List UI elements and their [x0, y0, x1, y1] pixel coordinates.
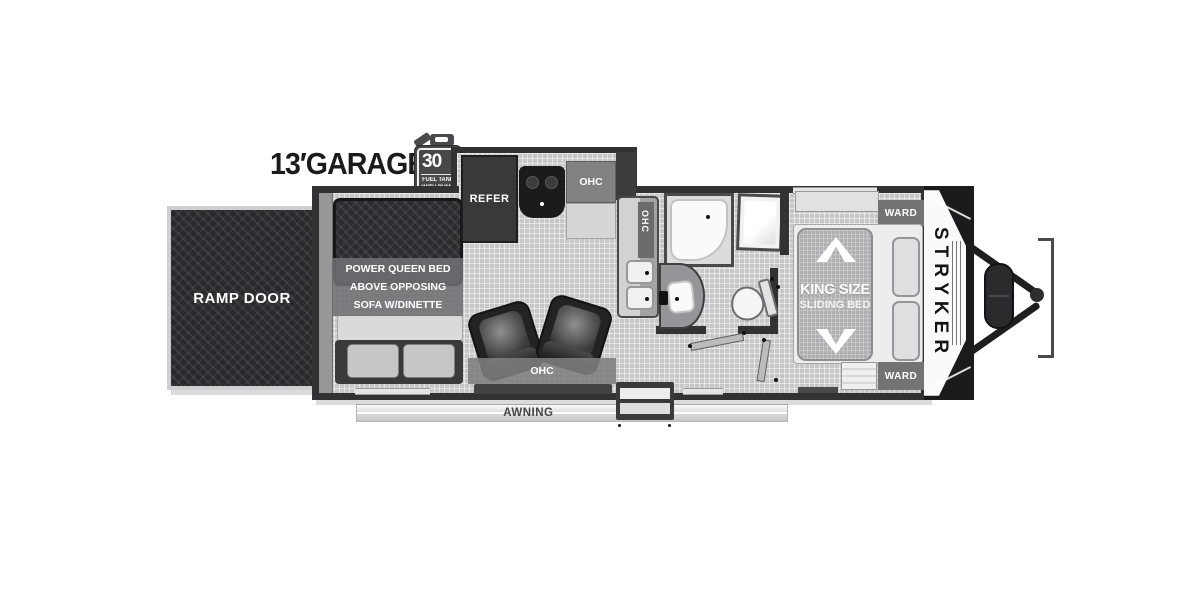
- bed-chevron-down-icon: [816, 329, 856, 354]
- wardrobe-top-label: WARD: [885, 208, 918, 219]
- floorplan-canvas: 13′GARAGE 30 GAL FUEL TANK WITH PUMP RAM…: [0, 0, 1200, 600]
- garage-sofa: [335, 340, 463, 384]
- stove-knob: [540, 202, 544, 206]
- drain-dot: [675, 297, 679, 301]
- stove-burner: [545, 176, 558, 189]
- bathroom-vanity: [659, 263, 705, 329]
- jack-bracket-arm: [1038, 238, 1054, 241]
- step-foot-dot: [618, 424, 621, 427]
- brand-label: STRYKER: [931, 198, 951, 388]
- door-hinge-dot: [742, 331, 746, 335]
- wardrobe-bottom: WARD: [878, 362, 924, 390]
- awning-rail-line: [357, 412, 787, 414]
- kitchen-ohc-cabinet: OHC: [566, 161, 616, 203]
- hitch-ball: [1030, 288, 1044, 302]
- stove-burner: [526, 176, 539, 189]
- shower-drain: [706, 215, 710, 219]
- door-stop-dot: [776, 285, 780, 289]
- dinette-table: [337, 315, 463, 341]
- awning-bar: AWNING: [356, 404, 788, 422]
- living-ohc-cabinet: OHC: [468, 358, 616, 384]
- garage-note-line: SOFA W/DINETTE: [333, 296, 463, 314]
- jack-bracket: [1051, 240, 1054, 358]
- counter-ohc-label: OHC: [640, 210, 650, 233]
- kitchen-counter-top: [566, 203, 616, 239]
- ramp-opening-frame: [319, 193, 333, 393]
- propane-seam: [989, 295, 1009, 297]
- garage-note-line: ABOVE OPPOSING: [333, 278, 463, 296]
- bathroom-wall: [780, 193, 789, 255]
- window-bedroom-bottom: [798, 387, 838, 393]
- sofa-cushion: [347, 344, 399, 378]
- sofa-cushion: [403, 344, 455, 378]
- step-tread: [620, 403, 670, 414]
- wardrobe-top: WARD: [878, 200, 924, 226]
- cooktop-stove-icon: [519, 166, 565, 218]
- step-tread: [620, 388, 670, 399]
- linen-cabinet-face: [743, 200, 776, 244]
- door-hinge-dot: [762, 338, 766, 342]
- garage-note: POWER QUEEN BED ABOVE OPPOSING SOFA W/DI…: [333, 258, 463, 316]
- shower-pan: [670, 199, 728, 261]
- faucet-dot: [645, 297, 649, 301]
- awning-label: AWNING: [503, 407, 553, 419]
- faucet-dot: [645, 271, 649, 275]
- bed-chevron-up-icon: [816, 237, 856, 262]
- pillow: [892, 301, 920, 361]
- step-foot-dot: [668, 424, 671, 427]
- linen-cabinet: [736, 193, 784, 252]
- refrigerator: REFER: [461, 155, 518, 243]
- garage-note-line: POWER QUEEN BED: [333, 260, 463, 278]
- shower: [664, 193, 734, 267]
- wardrobe-bottom-label: WARD: [885, 371, 918, 382]
- door-hinge-dot: [688, 344, 692, 348]
- door-stop-dot: [770, 277, 774, 281]
- kitchen-sink: [626, 286, 654, 310]
- window-living-bottom: [683, 388, 723, 395]
- living-ohc-label: OHC: [530, 365, 553, 377]
- king-sliding-bed: KING SIZE SLIDING BED: [797, 228, 873, 361]
- window-garage-bottom: [355, 388, 430, 395]
- garage-length-label: 13′GARAGE: [270, 146, 425, 182]
- ramp-door-label: RAMP DOOR: [171, 210, 313, 386]
- fuel-amount: 30: [422, 151, 441, 173]
- bedroom-cabinet: [795, 191, 879, 212]
- fuel-divider: [421, 174, 455, 175]
- cap-speed-lines: [952, 241, 962, 345]
- living-counter-sill: [474, 384, 612, 394]
- bed-label-line1: KING SIZE: [799, 282, 871, 298]
- galley-counter: OHC: [617, 196, 659, 318]
- bathroom-faucet: [659, 291, 668, 305]
- fuel-can-handle-hole: [435, 137, 448, 142]
- bedroom-bench: [841, 362, 877, 390]
- kitchen-ohc-label: OHC: [579, 176, 602, 188]
- propane-tank: [984, 263, 1014, 329]
- counter-ohc-cabinet: OHC: [638, 202, 654, 258]
- kitchen-sink: [626, 260, 654, 284]
- bed-label-line2: SLIDING BED: [799, 299, 871, 311]
- ramp-door: RAMP DOOR: [167, 206, 317, 390]
- kitchen-pantry-wall: [616, 152, 636, 200]
- pillow: [892, 237, 920, 297]
- entry-steps: [616, 382, 674, 420]
- jack-bracket-arm: [1038, 355, 1054, 358]
- refrigerator-label: REFER: [470, 193, 510, 205]
- door-hinge-dot: [774, 378, 778, 382]
- bathroom-sink: [666, 280, 695, 315]
